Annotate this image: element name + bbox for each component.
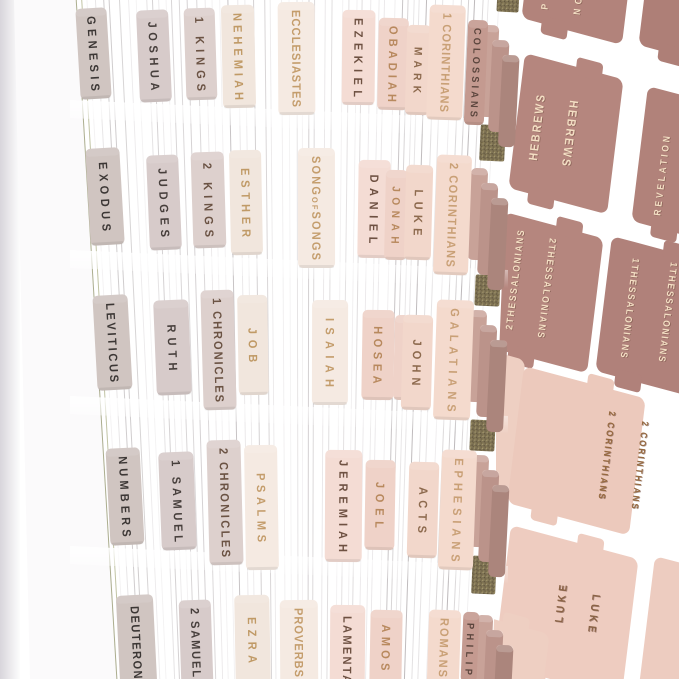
- svg-text:JOB: JOB: [245, 328, 258, 363]
- svg-text:2 SAMUEL: 2 SAMUEL: [187, 608, 202, 677]
- svg-text:SONGOFSONGS: SONGOFSONGS: [309, 156, 322, 260]
- svg-text:LAMENTATIONS: LAMENTATIONS: [339, 616, 352, 679]
- svg-text:ECCLESIASTES: ECCLESIASTES: [289, 10, 302, 107]
- svg-text:PROVERBS: PROVERBS: [291, 608, 304, 677]
